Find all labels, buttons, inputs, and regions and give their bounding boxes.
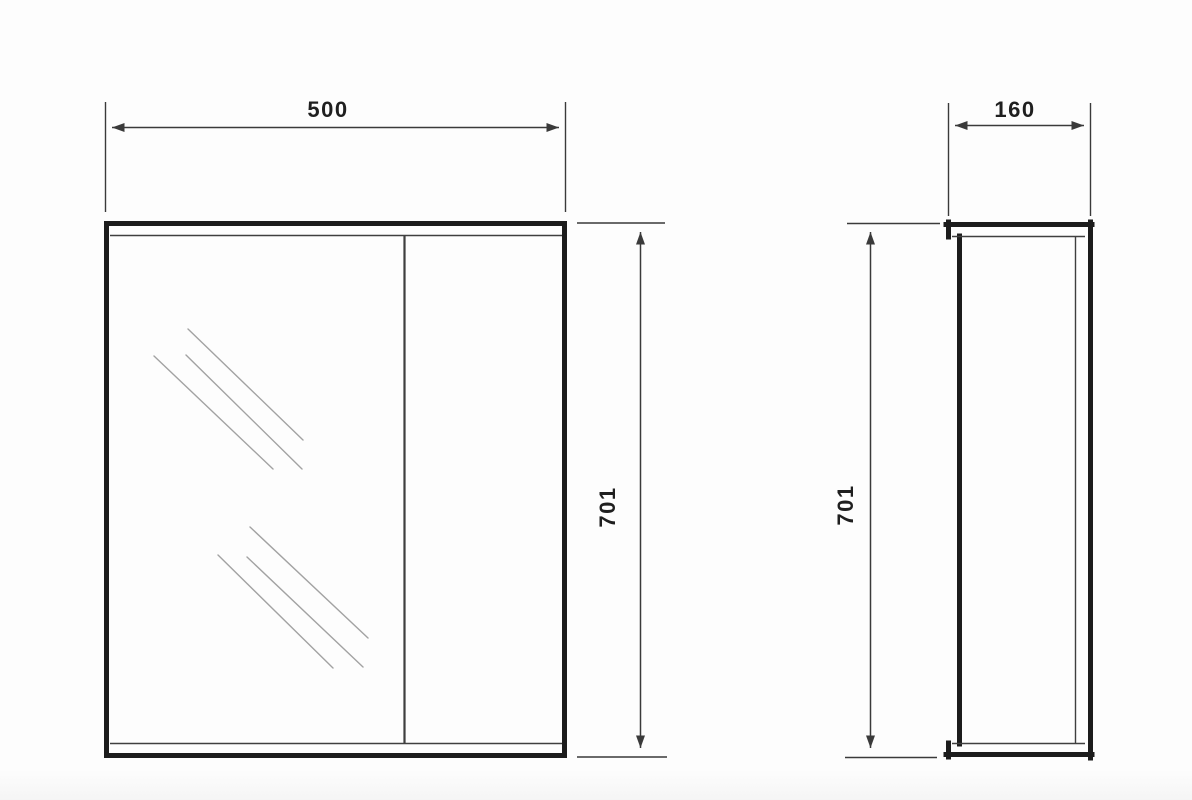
mirror-reflection-line: [250, 527, 368, 638]
side-height-dimension: [845, 224, 940, 758]
front-height-dimension: [577, 223, 667, 757]
front-height-dimension-label: 701: [597, 486, 619, 527]
mirror-reflection-line: [186, 355, 302, 469]
mirror-reflection-line: [188, 329, 303, 440]
mirror-reflection-line: [218, 555, 333, 668]
front-view: [106, 102, 668, 757]
front-view-outline: [107, 224, 565, 756]
technical-drawing-page: 500 701 160 701: [0, 0, 1192, 800]
mirror-reflection-line: [247, 557, 363, 667]
side-view: [845, 103, 1092, 758]
side-view-inner-lines: [952, 236, 1085, 744]
front-width-dimension-label: 500: [307, 99, 348, 121]
mirror-reflection-hatch: [154, 329, 368, 668]
side-view-outline: [946, 222, 1092, 758]
front-cabinet-body-outline: [107, 224, 565, 756]
side-depth-dimension-label: 160: [994, 99, 1035, 121]
side-height-dimension-label: 701: [835, 484, 857, 525]
mirror-reflection-line: [154, 356, 273, 469]
front-view-inner-lines: [110, 235, 562, 744]
